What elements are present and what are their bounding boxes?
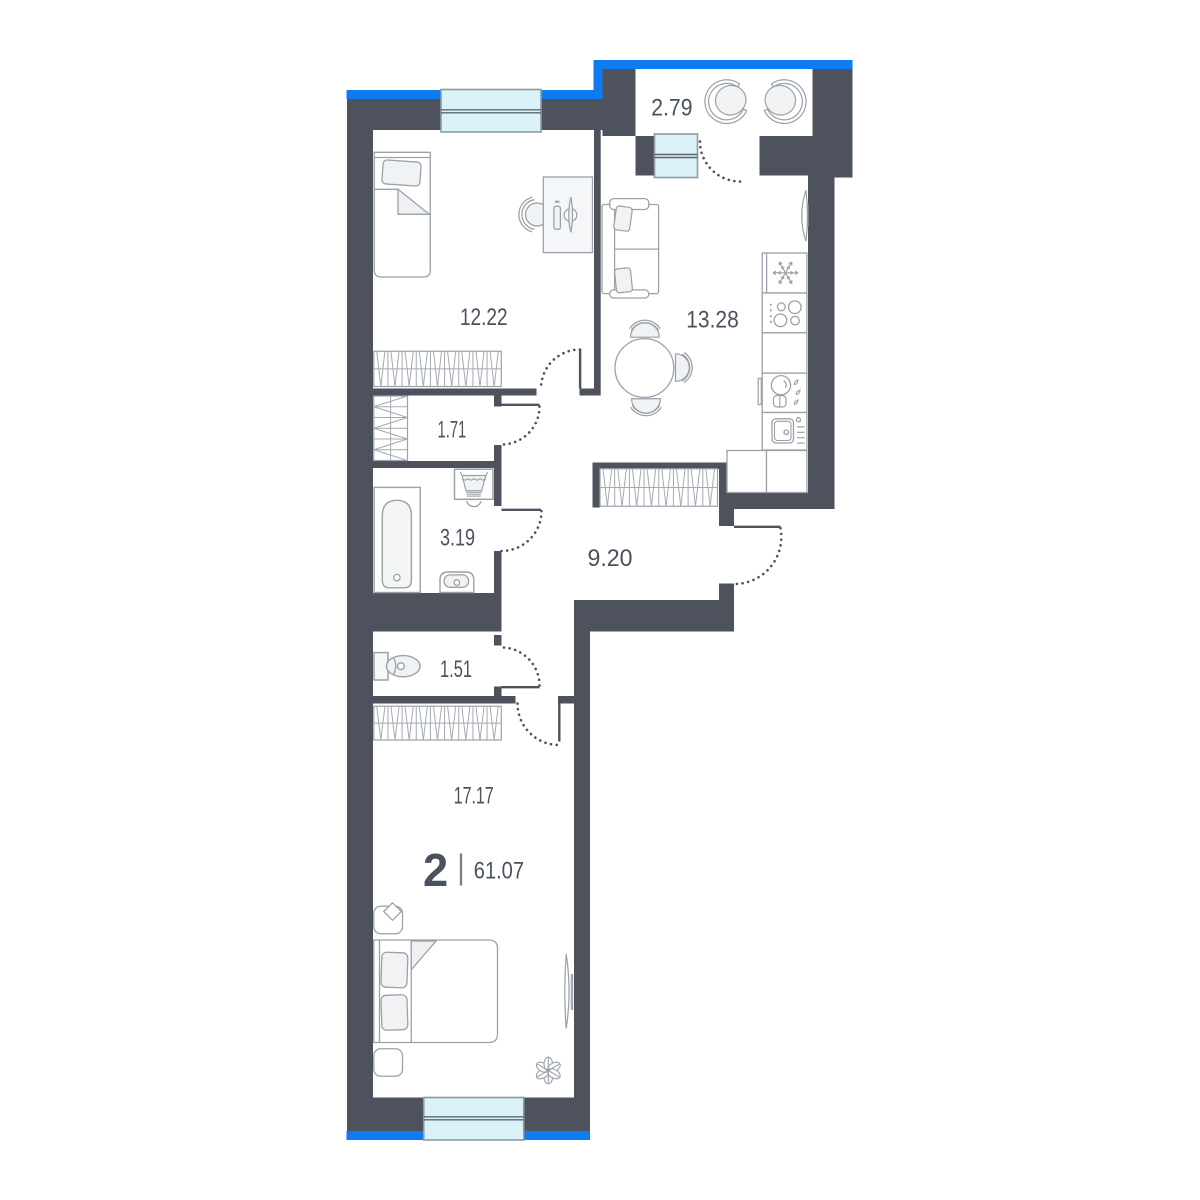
svg-text:9.20: 9.20 <box>588 545 633 572</box>
svg-text:13.28: 13.28 <box>686 307 739 334</box>
svg-text:12.22: 12.22 <box>460 304 508 331</box>
svg-text:3.19: 3.19 <box>440 525 475 552</box>
svg-text:17.17: 17.17 <box>454 783 494 810</box>
svg-text:2: 2 <box>423 844 448 896</box>
svg-text:2.79: 2.79 <box>651 95 692 122</box>
svg-text:1.51: 1.51 <box>440 656 472 683</box>
svg-text:61.07: 61.07 <box>474 858 524 885</box>
svg-text:1.71: 1.71 <box>438 417 467 444</box>
